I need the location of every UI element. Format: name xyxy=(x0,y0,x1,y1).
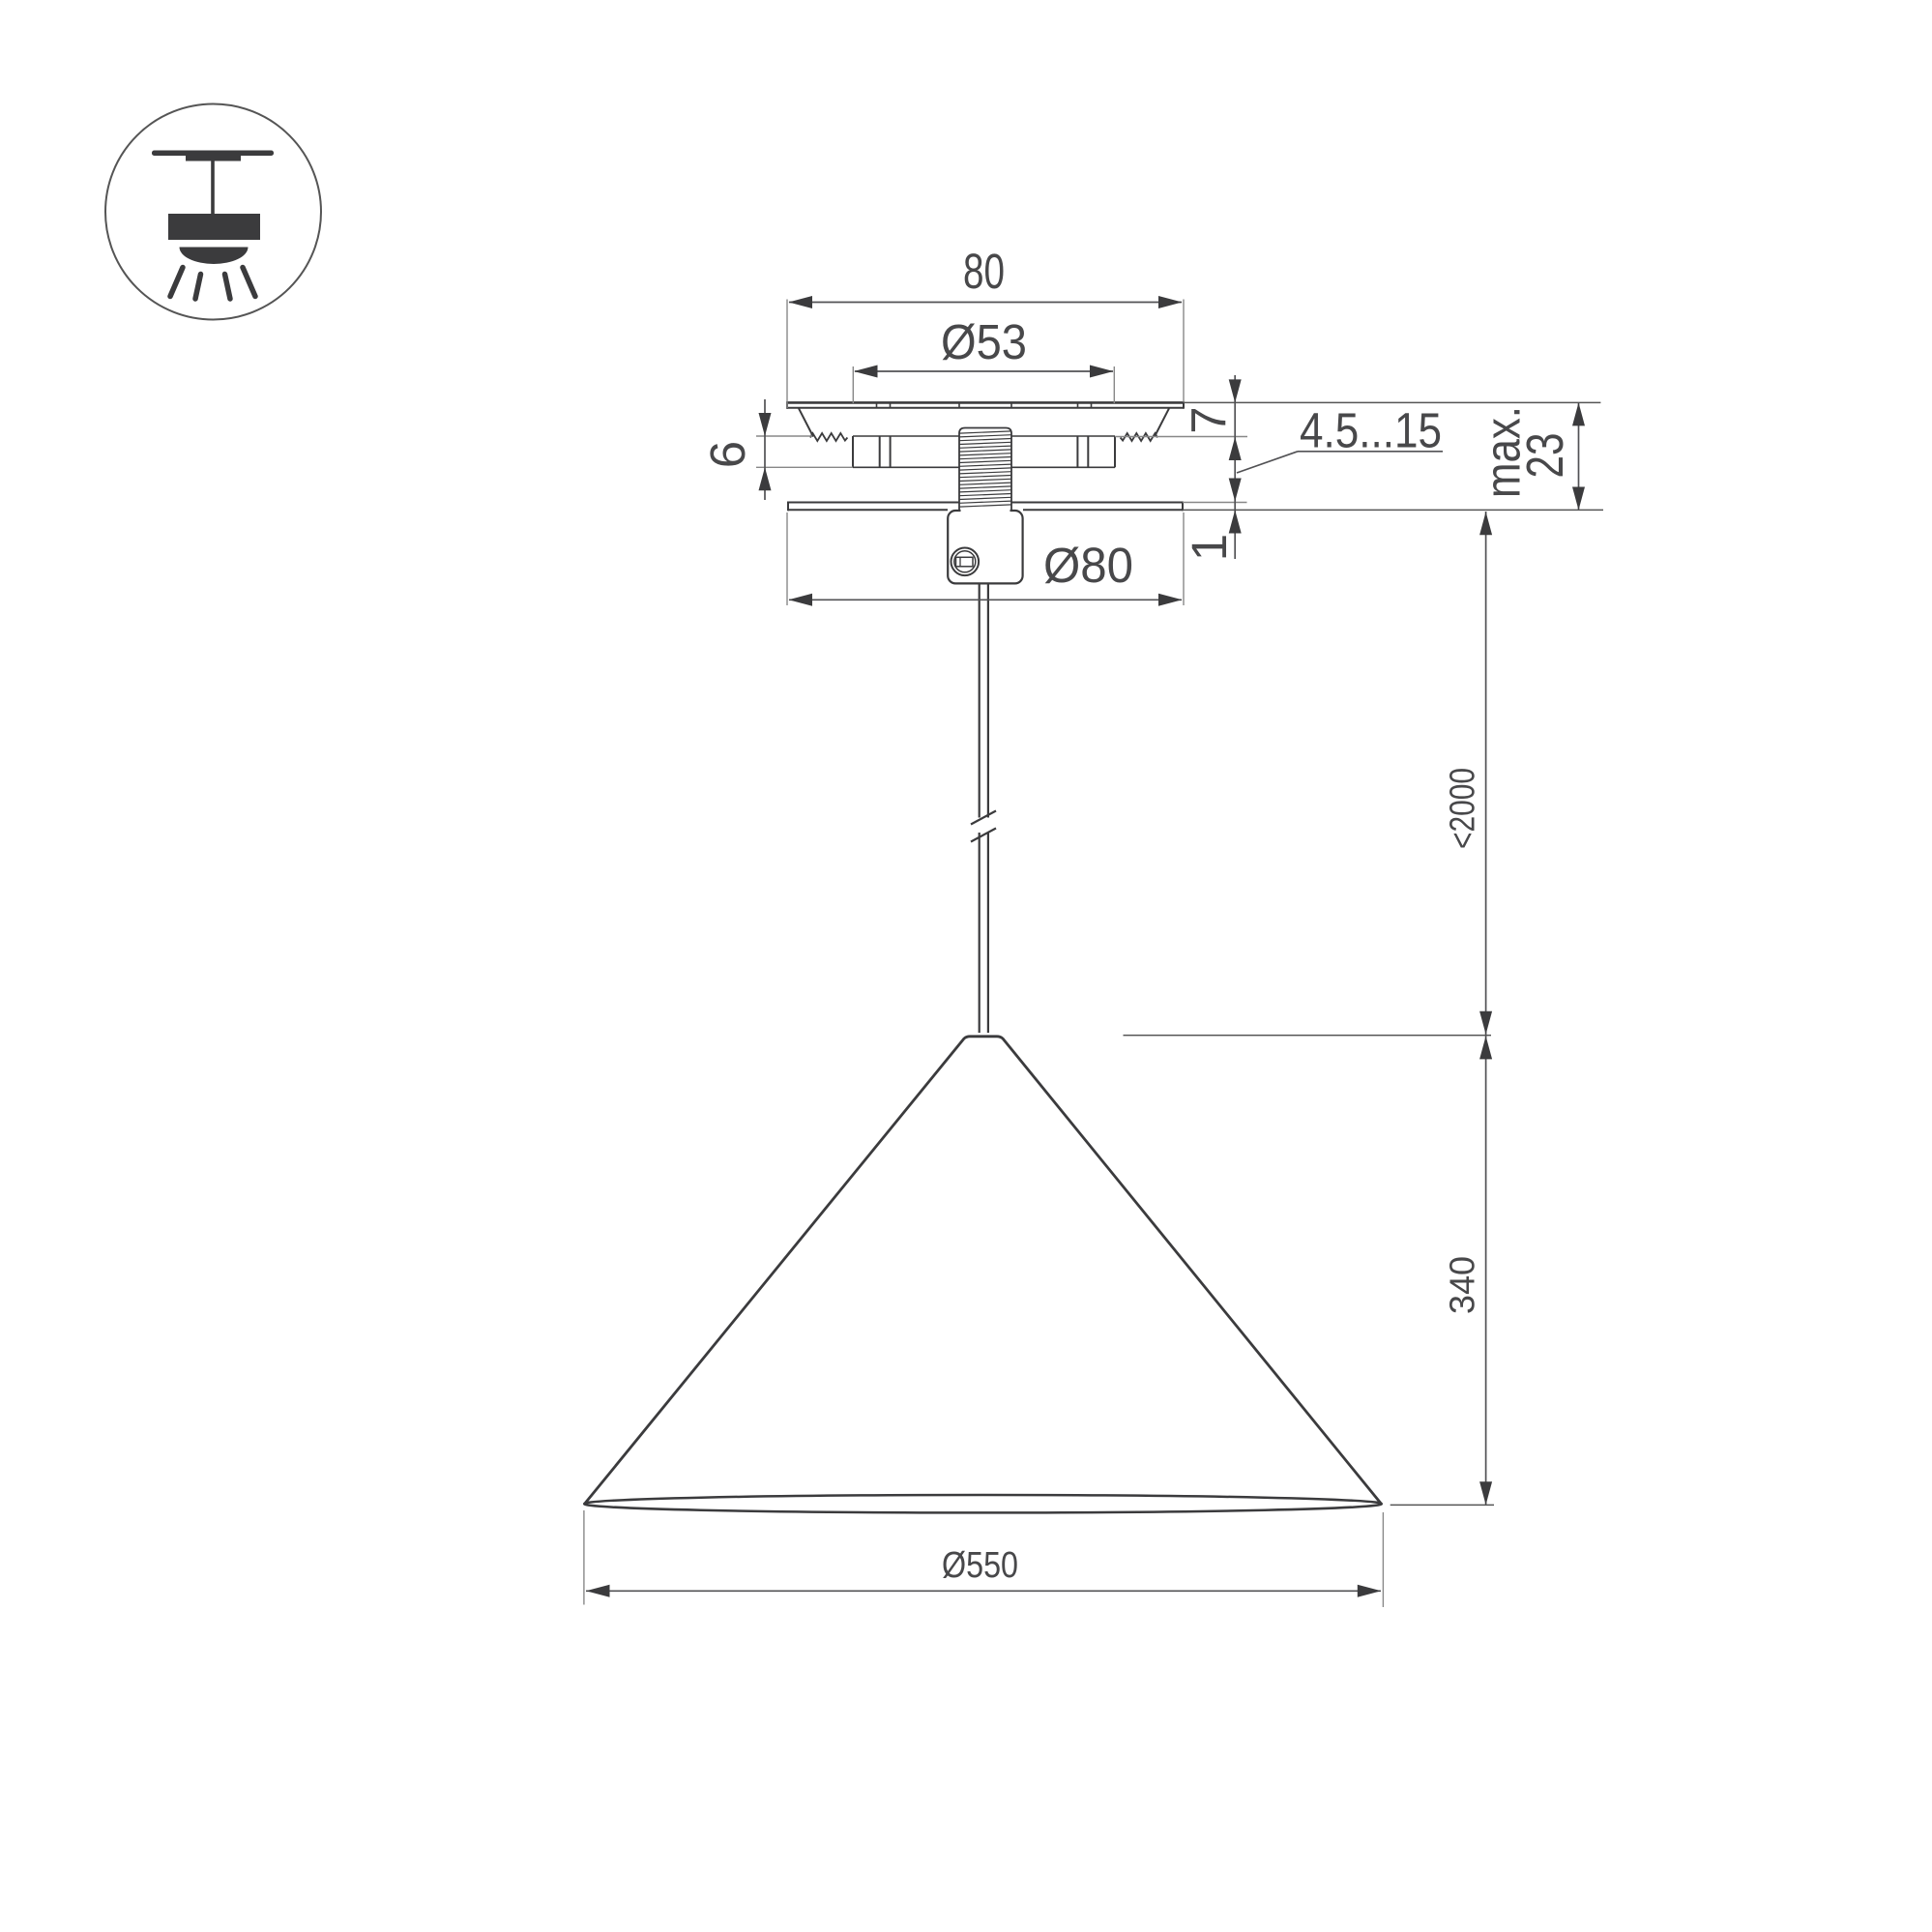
svg-text:6: 6 xyxy=(700,441,755,468)
svg-text:Ø80: Ø80 xyxy=(1043,538,1133,593)
svg-text:1: 1 xyxy=(1182,534,1237,561)
svg-text:23: 23 xyxy=(1516,433,1574,479)
svg-text:<2000: <2000 xyxy=(1443,768,1482,849)
svg-text:Ø53: Ø53 xyxy=(941,314,1027,369)
svg-text:340: 340 xyxy=(1443,1256,1482,1314)
svg-text:80: 80 xyxy=(963,244,1005,299)
svg-text:7: 7 xyxy=(1182,406,1237,433)
svg-text:Ø550: Ø550 xyxy=(942,1545,1018,1586)
svg-text:4.5...15: 4.5...15 xyxy=(1300,403,1442,458)
